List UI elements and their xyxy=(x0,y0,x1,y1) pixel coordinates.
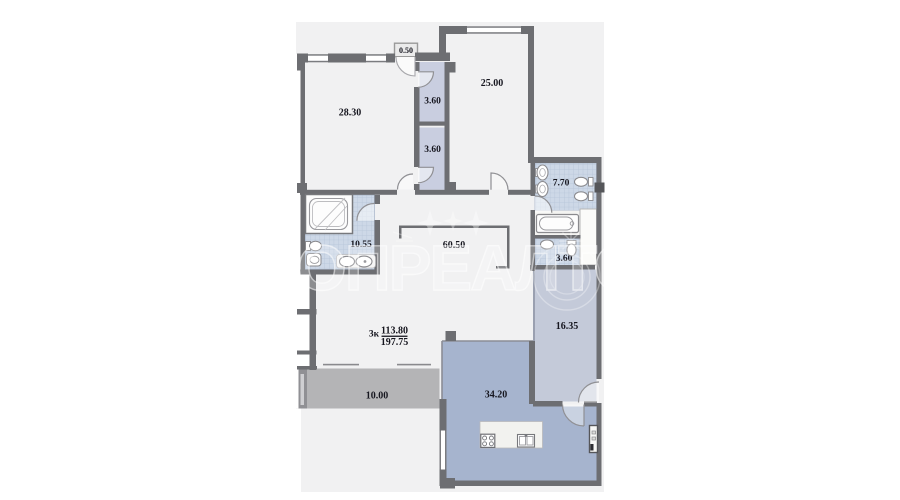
svg-text:197.75: 197.75 xyxy=(381,337,409,348)
svg-text:3.60: 3.60 xyxy=(424,97,441,107)
svg-text:3.60: 3.60 xyxy=(424,145,441,155)
svg-text:34.20: 34.20 xyxy=(485,390,508,401)
svg-text:10.00: 10.00 xyxy=(366,391,389,402)
svg-text:113.80: 113.80 xyxy=(381,326,408,337)
svg-text:7.70: 7.70 xyxy=(553,179,570,189)
svg-text:16.35: 16.35 xyxy=(556,321,579,332)
svg-text:ОПРЕАЛТОР: ОПРЕАЛТОР xyxy=(297,232,682,304)
svg-text:3к: 3к xyxy=(369,330,380,340)
svg-text:0.50: 0.50 xyxy=(399,46,413,55)
svg-text:25.00: 25.00 xyxy=(481,78,504,89)
svg-text:28.30: 28.30 xyxy=(339,108,362,119)
